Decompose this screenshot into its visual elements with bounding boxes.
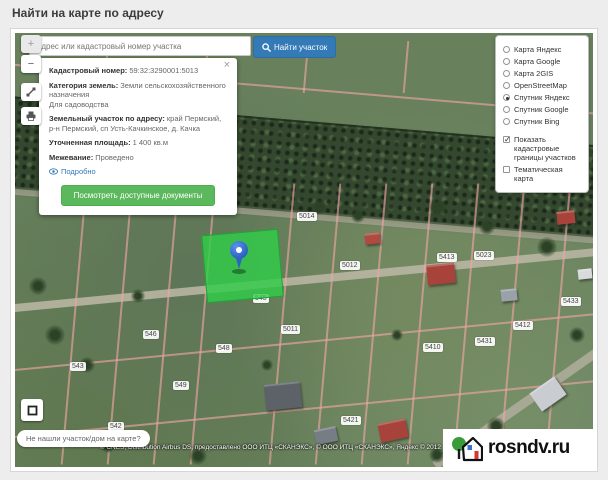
tree (29, 277, 47, 295)
watermark: rosndv.ru (443, 429, 593, 467)
parcel-number-label: 5431 (475, 337, 495, 346)
cadastral-boundary-line (403, 41, 410, 93)
radio-icon (503, 46, 510, 53)
close-icon[interactable]: × (224, 61, 230, 71)
rosndv-logo-icon (451, 433, 483, 463)
area-value: 1 400 кв.м (133, 138, 168, 147)
area-row: Уточненная площадь:1 400 кв.м (49, 138, 227, 148)
mezh-value: Проведено (95, 153, 134, 162)
layer-option-label: Карта 2GIS (514, 69, 553, 78)
map-attribution: © CNES, Distribution Airbus DS, предоста… (100, 444, 441, 451)
area-label: Уточненная площадь: (49, 138, 131, 147)
tree (391, 329, 403, 341)
tree (45, 325, 65, 345)
map-card: 5014 5012 5011 5413 5023 5433 5412 5410 … (10, 28, 598, 472)
layer-option-sputnik-google[interactable]: Спутник Google (503, 105, 581, 114)
tree (569, 327, 585, 343)
building (426, 263, 456, 286)
search-bar: Найти участок (29, 36, 336, 58)
search-icon (262, 43, 271, 52)
category-value2: Для садоводства (49, 100, 227, 110)
building (264, 381, 303, 411)
find-parcel-button[interactable]: Найти участок (253, 36, 336, 58)
cadastral-boundary-line (61, 183, 88, 464)
layer-option-sputnik-bing[interactable]: Спутник Bing (503, 117, 581, 126)
checkbox-icon (503, 166, 510, 173)
not-found-button[interactable]: Не нашли участок/дом на карте? (17, 430, 150, 447)
parcel-number-label: 5433 (561, 297, 581, 306)
parcel-number-label: 5413 (437, 253, 457, 262)
watermark-text: rosndv.ru (488, 437, 570, 459)
parcel-number-label: 546 (143, 330, 159, 339)
layers-panel: Карта Яндекс Карта Google Карта 2GIS Ope… (495, 35, 589, 193)
building (500, 288, 517, 302)
layer-option-label: Спутник Google (514, 105, 569, 114)
tree (479, 219, 495, 235)
cadnum-label: Кадастровый номер: (49, 66, 127, 75)
checkbox-label: Тематическая карта (514, 165, 581, 183)
checkbox-label: Показать кадастровые границы участков (514, 135, 581, 162)
mezh-label: Межевание: (49, 153, 93, 162)
zoom-in-button[interactable]: + (21, 35, 41, 53)
tree (429, 199, 447, 217)
cadastral-boundary-line (15, 311, 593, 372)
address-row: Земельный участок по адресу:край Пермски… (49, 114, 227, 133)
category-label: Категория земель: (49, 81, 118, 90)
layer-option-label: Карта Яндекс (514, 45, 561, 54)
parcel-info-popup: × Кадастровый номер:59:32:3290001:5013 К… (39, 58, 237, 215)
tree (261, 359, 273, 371)
documents-button[interactable]: Посмотреть доступные документы (61, 185, 216, 206)
pin-shadow (232, 269, 246, 274)
details-link[interactable]: Подробно (49, 167, 227, 177)
parcel-number-label: 549 (173, 381, 189, 390)
page-title: Найти на карте по адресу (12, 6, 164, 20)
tree (351, 209, 365, 223)
fullscreen-icon (27, 405, 38, 416)
radio-checked-icon (503, 94, 510, 101)
tree (131, 289, 145, 303)
details-link-label: Подробно (61, 167, 96, 177)
radio-icon (503, 106, 510, 113)
radio-icon (503, 82, 510, 89)
layer-checkboxes: Показать кадастровые границы участков Те… (503, 135, 581, 183)
radio-icon (503, 58, 510, 65)
layer-option-karta-google[interactable]: Карта Google (503, 57, 581, 66)
ruler-icon (26, 87, 36, 97)
map[interactable]: 5014 5012 5011 5413 5023 5433 5412 5410 … (15, 33, 593, 467)
fullscreen-button[interactable] (21, 399, 43, 421)
address-label: Земельный участок по адресу: (49, 114, 165, 123)
category-row: Категория земель:Земли сельскохозяйствен… (49, 81, 227, 110)
layer-option-label: OpenStreetMap (514, 81, 567, 90)
cadastral-boundary-line (269, 183, 296, 464)
parcel-number-label: 5421 (341, 416, 361, 425)
cadnum-row: Кадастровый номер:59:32:3290001:5013 (49, 66, 227, 76)
printer-icon (26, 111, 36, 121)
layer-option-label: Спутник Bing (514, 117, 559, 126)
checkbox-thematic-map[interactable]: Тематическая карта (503, 165, 581, 183)
map-pin[interactable] (225, 241, 253, 275)
layer-option-karta-yandex[interactable]: Карта Яндекс (503, 45, 581, 54)
cadastral-boundary-line (315, 183, 342, 464)
cadastral-boundary-line (190, 183, 217, 464)
parcel-number-label: 5412 (513, 321, 533, 330)
checkbox-show-cadastral-borders[interactable]: Показать кадастровые границы участков (503, 135, 581, 162)
radio-icon (503, 118, 510, 125)
parcel-number-label: 5014 (297, 212, 317, 221)
layer-option-label: Карта Google (514, 57, 560, 66)
road (15, 246, 593, 313)
zoom-out-button[interactable]: − (21, 55, 41, 73)
building (364, 232, 380, 245)
building (556, 210, 575, 225)
layer-option-openstreetmap[interactable]: OpenStreetMap (503, 81, 581, 90)
building (578, 268, 593, 279)
parcel-number-label: 5410 (423, 343, 443, 352)
parcel-number-label: 543 (70, 362, 86, 371)
print-button[interactable] (21, 107, 41, 125)
cadnum-value: 59:32:3290001:5013 (129, 66, 198, 75)
layer-option-label: Спутник Яндекс (514, 93, 570, 102)
tree (537, 237, 557, 257)
mezh-row: Межевание:Проведено (49, 153, 227, 163)
page-header: Найти на карте по адресу (0, 0, 608, 26)
eye-icon (49, 168, 58, 175)
building (314, 426, 339, 445)
measure-button[interactable] (21, 83, 41, 101)
radio-icon (503, 70, 510, 77)
building (377, 418, 408, 442)
layer-option-karta-2gis[interactable]: Карта 2GIS (503, 69, 581, 78)
find-parcel-label: Найти участок (274, 43, 327, 52)
parcel-number-label: 5011 (281, 325, 300, 334)
search-input[interactable] (29, 36, 251, 56)
parcel-number-label: 5012 (340, 261, 360, 270)
parcel-number-label: 548 (216, 344, 232, 353)
parcel-number-label: 5023 (474, 251, 494, 260)
pin-dot (236, 247, 242, 253)
checkbox-checked-icon (503, 136, 510, 143)
layer-option-sputnik-yandex[interactable]: Спутник Яндекс (503, 93, 581, 102)
page: Найти на карте по адресу (0, 0, 608, 480)
